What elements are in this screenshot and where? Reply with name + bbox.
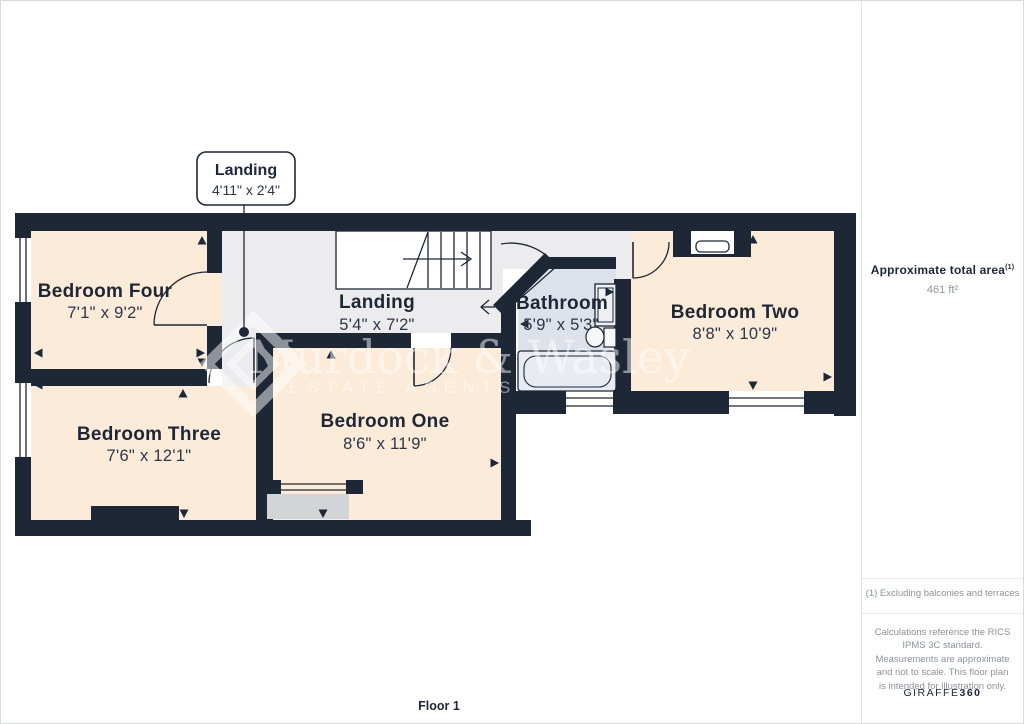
hearth [267,494,349,519]
dims-bedroom-four: 7'1" x 9'2" [67,304,142,322]
callout-anchor-dot [239,327,249,337]
total-area-superscript: (1) [1005,264,1014,271]
stairs [336,231,491,289]
window-bathroom [566,391,613,414]
floorplan-page: Bedroom Four 7'1" x 9'2" Landing 5'4" x … [0,0,1024,724]
callout-room-name: Landing [215,162,277,179]
total-area-block: Approximate total area(1) 461 ft² [862,263,1023,296]
sidebar-divider-bottom [862,613,1023,614]
sidebar-divider-top [862,578,1023,579]
label-bedroom-four: Bedroom Four [38,281,173,302]
bedroom-two-fireplace [691,231,734,254]
label-bathroom: Bathroom [516,293,608,314]
dims-bedroom-three: 7'6" x 12'1" [107,447,192,465]
giraffe360-brand: GIRAFFE360 [862,687,1023,699]
total-area-value: 461 ft² [862,284,1023,296]
callout-room-dims: 4'11" x 2'4" [212,182,280,198]
label-landing: Landing [339,292,415,313]
window-bedroom-four [15,238,31,302]
total-area-title-text: Approximate total area [871,263,1005,277]
chimney-breast [91,506,179,520]
label-bedroom-two: Bedroom Two [671,302,800,323]
floorplan-svg: Bedroom Four 7'1" x 9'2" Landing 5'4" x … [1,1,864,724]
info-sidebar: Approximate total area(1) 461 ft² (1) Ex… [861,1,1023,724]
brand-suffix: 360 [959,687,981,699]
dims-bedroom-two: 8'8" x 10'9" [693,325,778,343]
label-bedroom-one: Bedroom One [321,411,450,432]
watermark-agency-tagline: ESTATE AGENTS [289,378,517,397]
window-bedroom-three [15,383,31,457]
label-bedroom-three: Bedroom Three [77,424,221,445]
window-bedroom-two [729,391,804,414]
area-footnote: (1) Excluding balconies and terraces [862,588,1023,599]
floor-label: Floor 1 [418,699,460,713]
floorplan-canvas: Bedroom Four 7'1" x 9'2" Landing 5'4" x … [1,1,864,724]
doorway-floor [614,231,633,279]
dims-bedroom-one: 8'6" x 11'9" [343,435,427,453]
brand-name: GIRAFFE [903,687,959,699]
total-area-title: Approximate total area(1) [862,263,1023,277]
watermark-agency-name: Murdock & Wasley [248,330,690,384]
disclaimer-text: Calculations reference the RICS IPMS 3C … [862,626,1023,693]
